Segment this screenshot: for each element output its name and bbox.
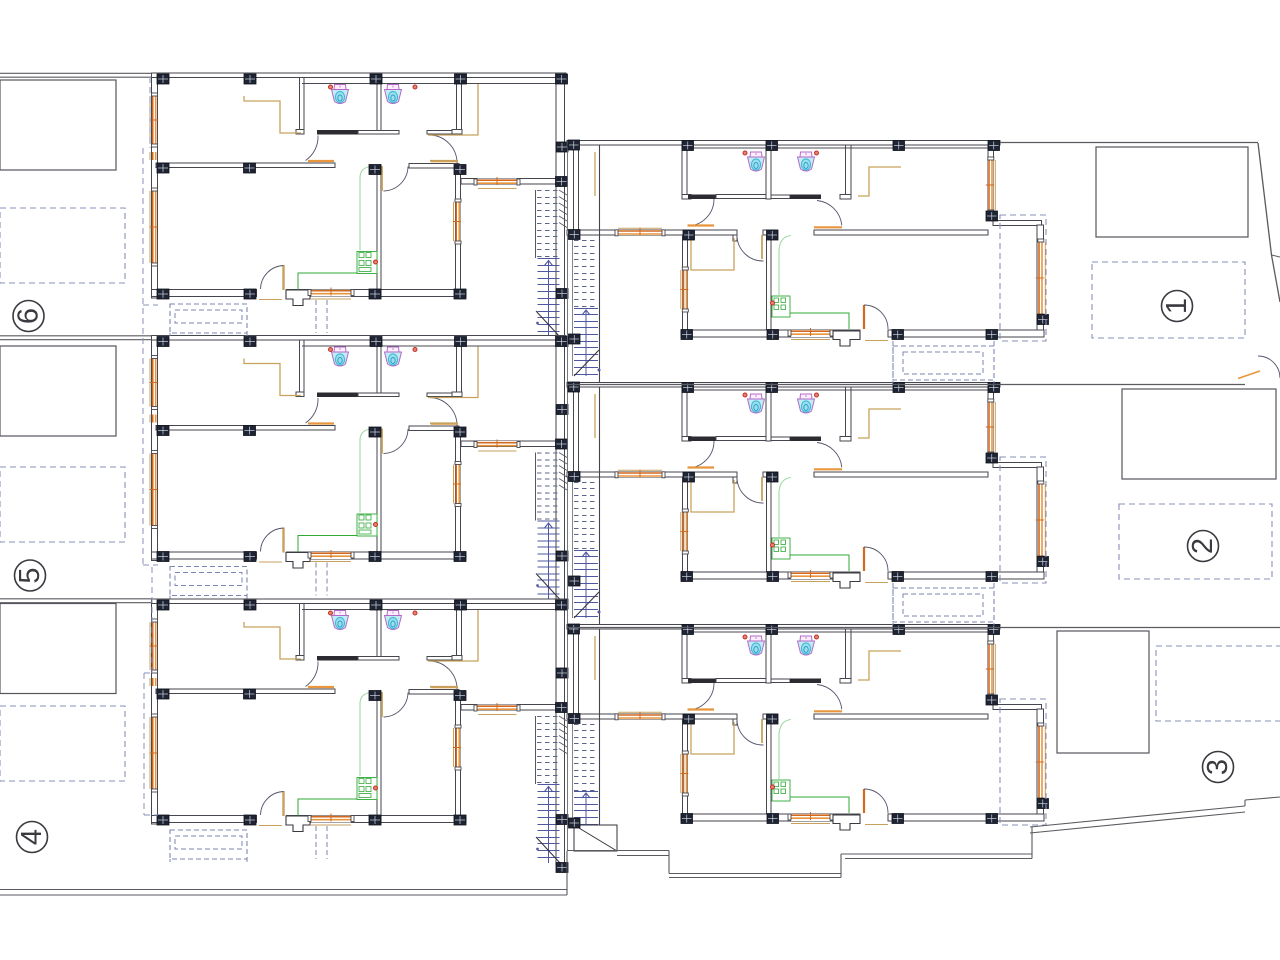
svg-text:1: 1	[1161, 298, 1193, 314]
svg-text:5: 5	[14, 567, 46, 583]
svg-text:2: 2	[1187, 538, 1219, 554]
svg-text:4: 4	[16, 829, 48, 845]
svg-text:3: 3	[1202, 759, 1234, 775]
svg-text:6: 6	[13, 308, 45, 324]
